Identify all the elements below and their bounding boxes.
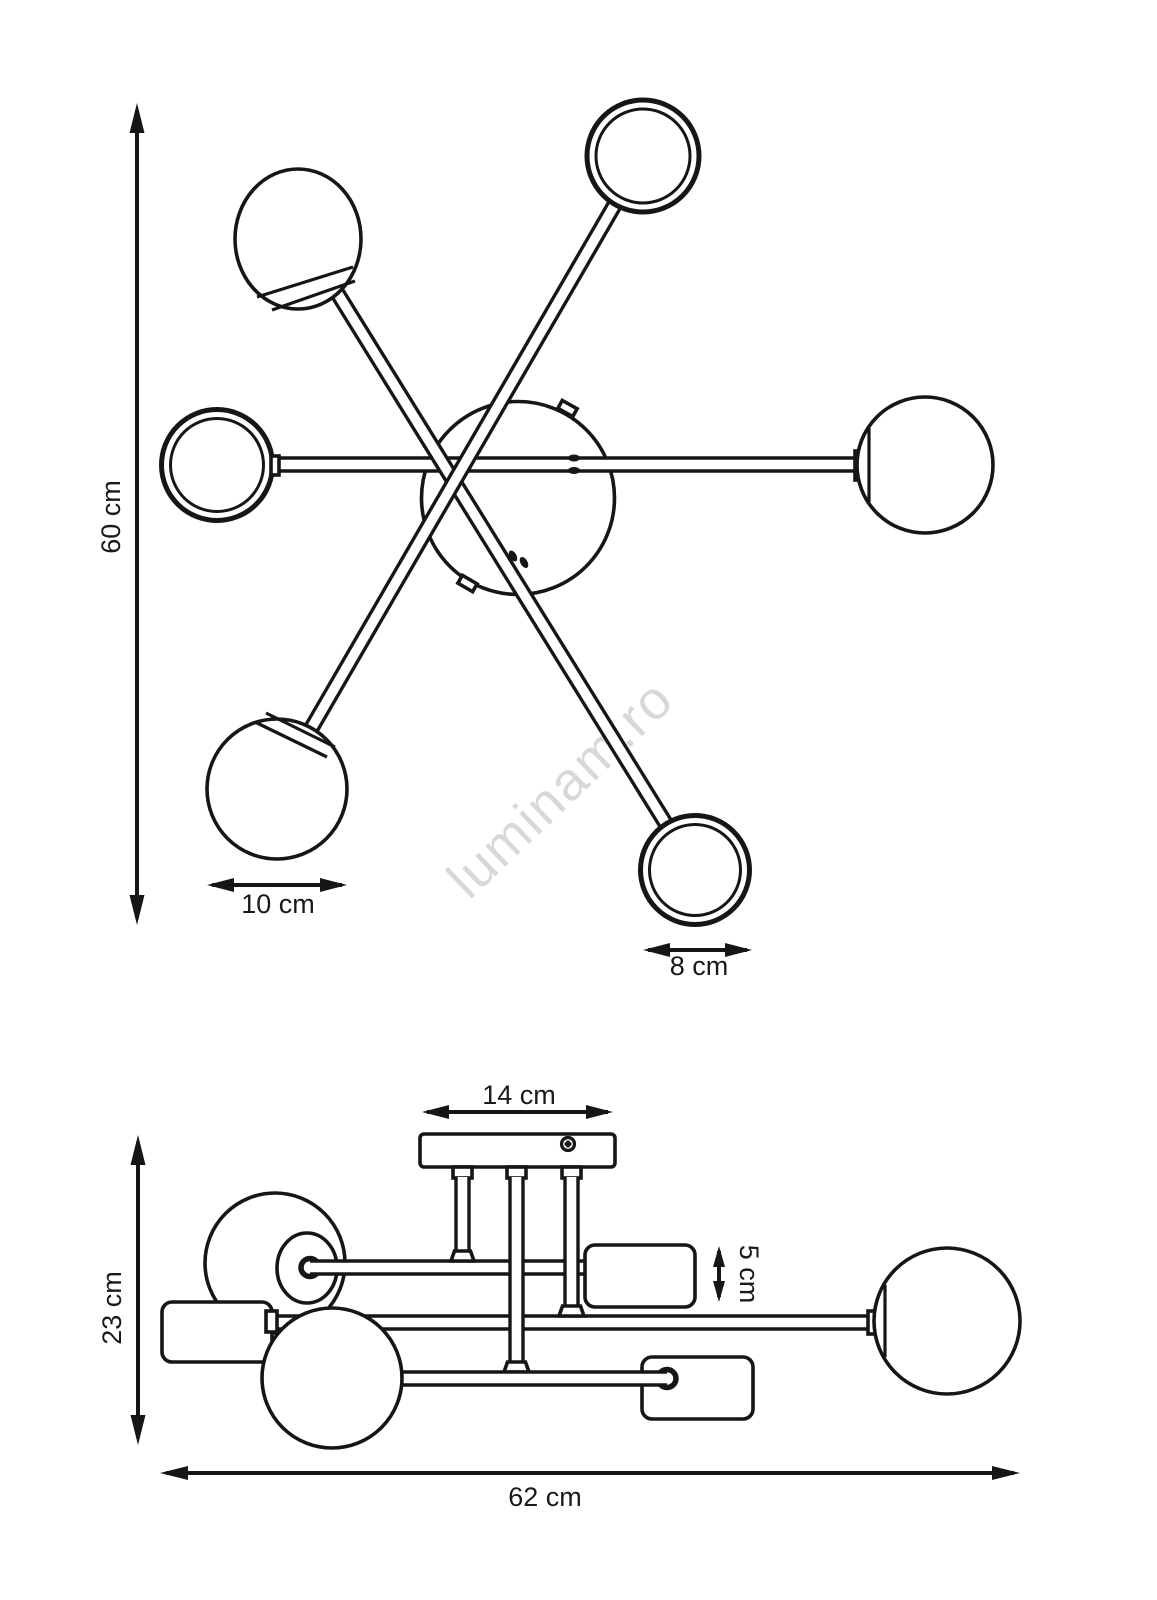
- ring-lower-right: [641, 816, 750, 925]
- globe-right: [855, 397, 993, 533]
- ring-left: [162, 410, 280, 521]
- label-8cm: 8 cm: [670, 951, 729, 981]
- dimension-height-23: 23 cm: [97, 1135, 146, 1445]
- lamp-dimension-diagram: luminam.ro: [0, 0, 1157, 1600]
- side-socket-left: [266, 1311, 277, 1332]
- side-cylinder-right: [585, 1245, 695, 1307]
- ceiling-plate: [420, 1134, 615, 1167]
- screw-dot: [568, 467, 580, 474]
- arm-horizontal: [279, 458, 856, 471]
- side-arm-upper: [301, 1259, 585, 1277]
- dimension-shade-5: 5 cm: [713, 1245, 764, 1304]
- top-view: 60 cm 10 cm 8 cm: [96, 100, 993, 981]
- label-14cm: 14 cm: [482, 1080, 556, 1110]
- side-arm-lower: [398, 1370, 676, 1388]
- label-5cm: 5 cm: [734, 1245, 764, 1304]
- dimension-canopy-14: 14 cm: [422, 1080, 613, 1119]
- label-23cm: 23 cm: [97, 1271, 127, 1345]
- label-10cm: 10 cm: [241, 889, 315, 919]
- globe-upper-left: [235, 169, 361, 310]
- dimension-height-60: 60 cm: [96, 103, 145, 925]
- label-62cm: 62 cm: [508, 1482, 582, 1512]
- side-right-globe: [874, 1248, 1020, 1394]
- side-cylinder-left: [162, 1302, 272, 1362]
- label-60cm: 60 cm: [96, 480, 126, 554]
- side-view: 14 cm 5 cm 23 cm 62 cm: [97, 1080, 1020, 1512]
- side-front-globe: [262, 1308, 402, 1448]
- stem-left: [451, 1167, 474, 1261]
- screw-dot: [568, 455, 580, 462]
- stem-right: [559, 1167, 584, 1316]
- arm-diagonal-left: [331, 288, 672, 828]
- globe-lower-left: [207, 713, 347, 859]
- dimension-globe-10: 10 cm: [207, 878, 347, 919]
- ring-upper-right: [587, 100, 699, 212]
- dimension-ring-8: 8 cm: [643, 943, 752, 981]
- dimension-width-62: 62 cm: [160, 1466, 1020, 1512]
- side-cylinder-bottom: [642, 1357, 753, 1419]
